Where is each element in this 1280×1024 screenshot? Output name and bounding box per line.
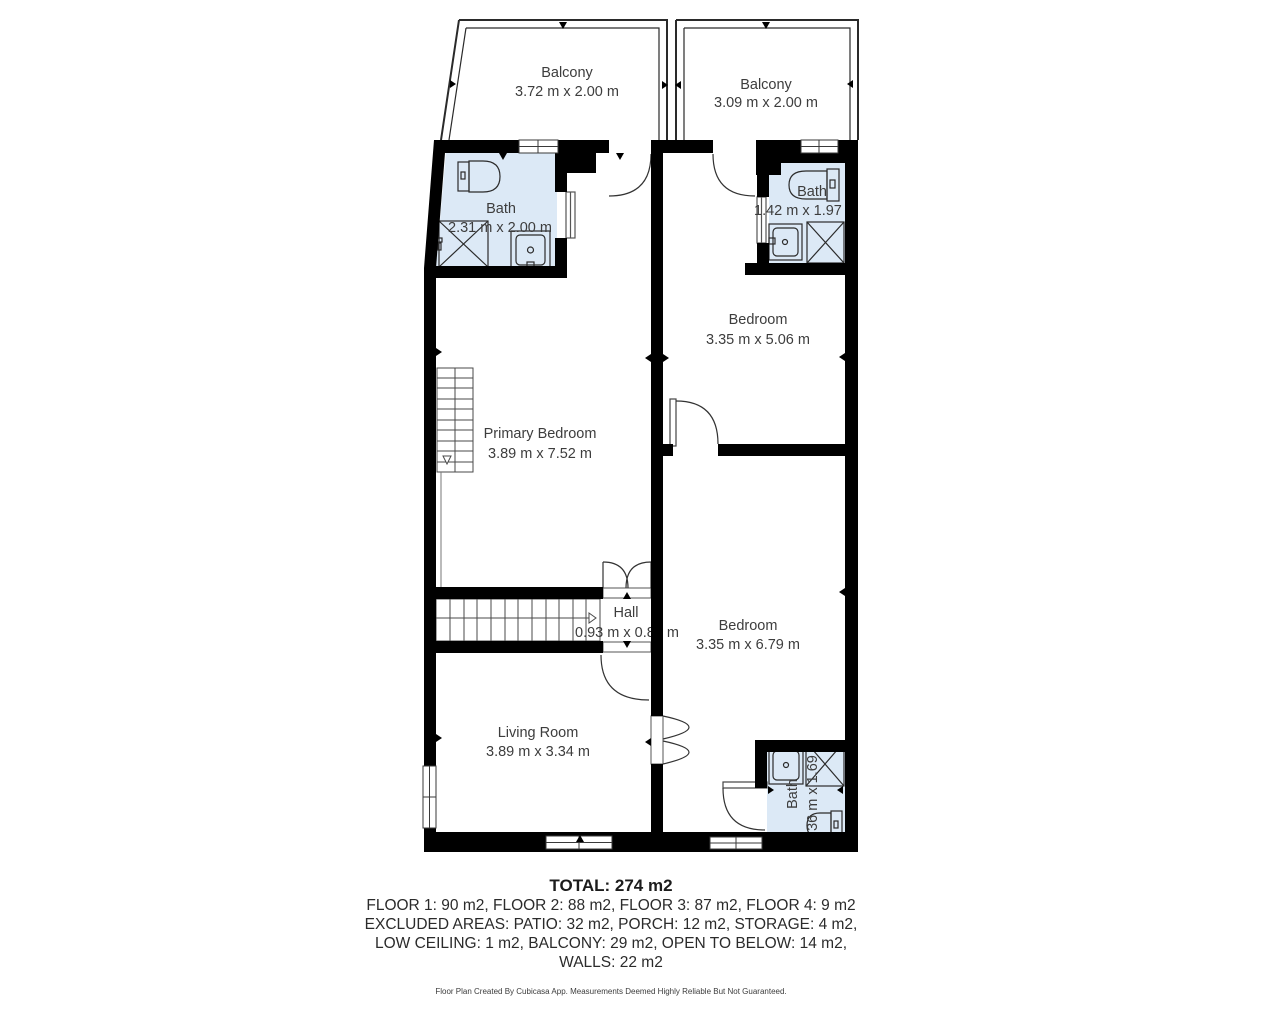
- door-arc: [601, 655, 649, 700]
- total-area-text: TOTAL: 274 m2: [0, 876, 1251, 896]
- excluded-areas-text-2: LOW CEILING: 1 m2, BALCONY: 29 m2, OPEN …: [0, 934, 1251, 953]
- door-arc: [663, 741, 689, 764]
- door-arc: [609, 154, 651, 196]
- room-dims-living-room: 3.89 m x 3.34 m: [486, 744, 590, 760]
- door-bedroom-upper: [670, 399, 718, 446]
- door-arc: [626, 562, 651, 588]
- room-label-primary-bedroom: Primary Bedroom: [484, 426, 597, 442]
- room-dims-bedroom-upper: 3.35 m x 5.06 m: [706, 332, 810, 348]
- room-label-hall: Hall: [614, 605, 639, 621]
- window: [423, 766, 436, 828]
- door-living-room: [601, 642, 651, 700]
- disclaimer-text: Floor Plan Created By Cubicasa App. Meas…: [0, 987, 1251, 996]
- double-door-bedroom-lower: [651, 716, 689, 764]
- walls-area-text: WALLS: 22 m2: [0, 953, 1251, 972]
- room-label-bedroom-lower: Bedroom: [719, 618, 778, 634]
- room-label-living-room: Living Room: [498, 725, 579, 741]
- room-label-bedroom-upper: Bedroom: [729, 312, 788, 328]
- room-dims-balcony-right: 3.09 m x 2.00 m: [714, 95, 818, 111]
- room-dims-bedroom-lower: 3.35 m x 6.79 m: [696, 637, 800, 653]
- staircase-vertical: [437, 368, 473, 587]
- door-arc: [713, 154, 755, 196]
- door-arc: [663, 716, 689, 739]
- room-dims-primary-bedroom: 3.89 m x 7.52 m: [488, 446, 592, 462]
- door-bath-bottom: [723, 782, 767, 830]
- door-arc: [603, 562, 628, 588]
- room-dims-bath-top-right: 1.42 m x 1.97 m: [754, 203, 858, 219]
- room-label-bath-top-right: Bath: [797, 184, 827, 200]
- sliding-door: [566, 192, 575, 238]
- window: [801, 140, 838, 153]
- room-dims-bath-bottom: 1.36 m x 1.69 m: [805, 739, 821, 843]
- floor-areas-text: FLOOR 1: 90 m2, FLOOR 2: 88 m2, FLOOR 3:…: [0, 896, 1251, 915]
- room-dims-bath-top-left: 2.31 m x 2.00 m: [448, 220, 552, 236]
- stairs-down-arrow-icon: [443, 456, 451, 464]
- room-dims-balcony-left: 3.72 m x 2.00 m: [515, 84, 619, 100]
- balcony-outlines: [441, 20, 858, 140]
- stairs-up-arrow-icon: [589, 613, 596, 623]
- room-dims-hall: 0.93 m x 0.89 m: [575, 625, 679, 641]
- doors: [566, 154, 767, 830]
- area-summary: TOTAL: 274 m2 FLOOR 1: 90 m2, FLOOR 2: 8…: [0, 876, 1251, 972]
- window: [710, 837, 762, 849]
- room-label-balcony-left: Balcony: [541, 65, 593, 81]
- excluded-areas-text: EXCLUDED AREAS: PATIO: 32 m2, PORCH: 12 …: [0, 915, 1251, 934]
- room-label-balcony-right: Balcony: [740, 77, 792, 93]
- floor-plan-page: Balcony 3.72 m x 2.00 m Balcony 3.09 m x…: [0, 0, 1280, 1024]
- door-arc: [676, 401, 718, 444]
- room-label-bath-top-left: Bath: [486, 201, 516, 217]
- window: [519, 140, 558, 153]
- floor-plan-drawing: Balcony 3.72 m x 2.00 m Balcony 3.09 m x…: [0, 0, 1280, 1024]
- room-label-bath-bottom: Bath: [785, 779, 801, 809]
- door-arc: [723, 788, 765, 830]
